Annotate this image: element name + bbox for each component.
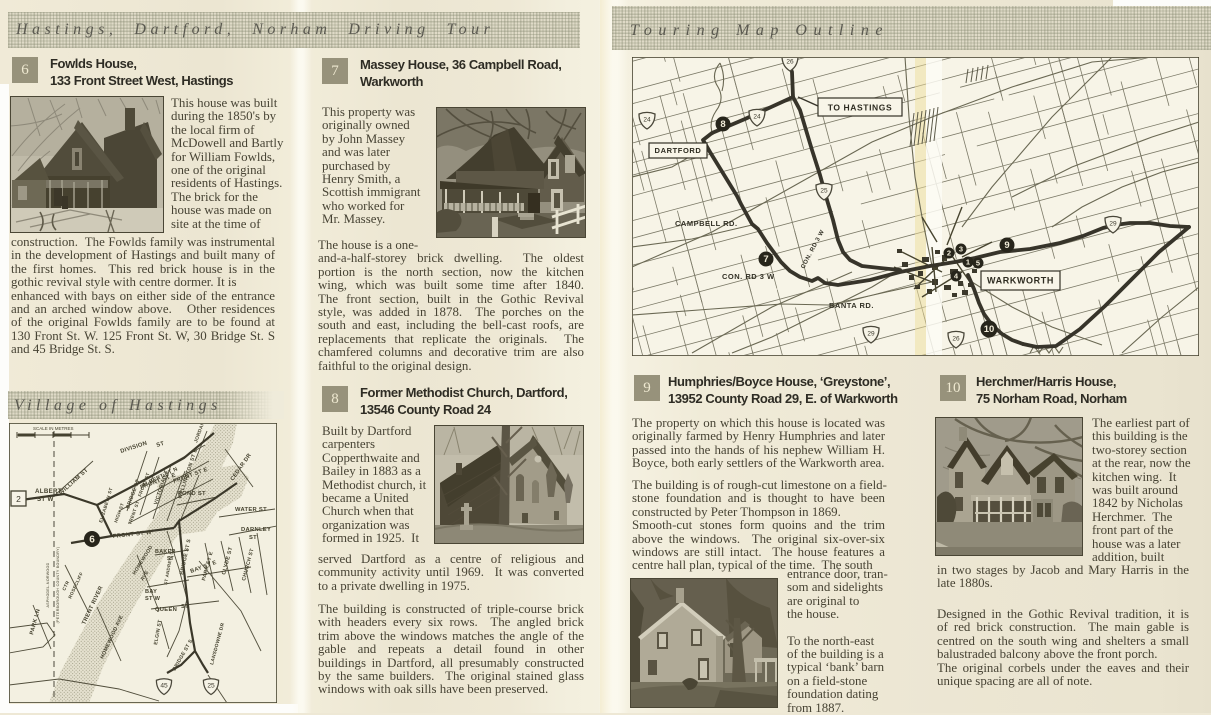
svg-text:TO HASTINGS: TO HASTINGS [828,103,893,113]
svg-text:25: 25 [207,682,215,689]
svg-text:DARTFORD: DARTFORD [655,146,702,155]
svg-text:9: 9 [1004,240,1009,251]
svg-text:QUEEN: QUEEN [155,607,177,613]
svg-text:CAMPBELL RD.: CAMPBELL RD. [675,219,738,228]
svg-text:6: 6 [89,534,95,545]
svg-text:24: 24 [753,114,761,121]
svg-text:3: 3 [959,245,963,254]
svg-text:ASPHODEL-NORWOOD: ASPHODEL-NORWOOD [46,562,50,607]
svg-text:WATER ST: WATER ST [235,507,267,513]
svg-text:2: 2 [16,494,21,504]
svg-text:29: 29 [1109,221,1117,228]
svg-text:ST W: ST W [145,596,161,602]
svg-text:8: 8 [720,119,725,130]
svg-text:BAY: BAY [145,589,157,595]
svg-text:5: 5 [976,259,980,268]
svg-text:WARKWORTH: WARKWORTH [987,276,1054,286]
svg-text:CON. RD 3 W: CON. RD 3 W [722,272,775,281]
svg-text:ST: ST [249,535,257,541]
svg-text:ST W: ST W [37,496,54,503]
svg-text:1: 1 [966,258,970,267]
svg-text:ST: ST [181,604,189,610]
svg-text:BANTA RD.: BANTA RD. [829,301,874,310]
svg-text:(PETERBOROUGH COUNTY BOUNDRY): (PETERBOROUGH COUNTY BOUNDRY) [56,547,60,624]
svg-text:SCALE IN METRES: SCALE IN METRES [33,426,74,431]
svg-text:2: 2 [947,249,951,258]
svg-text:7: 7 [763,254,768,265]
svg-text:POND ST: POND ST [178,491,206,497]
svg-text:26: 26 [786,59,794,66]
svg-text:10: 10 [984,324,995,335]
svg-text:24: 24 [643,117,651,124]
svg-text:25: 25 [820,188,828,195]
svg-text:26: 26 [952,336,960,343]
svg-text:DARNLEY: DARNLEY [241,527,271,533]
svg-text:45: 45 [160,682,168,689]
svg-text:29: 29 [867,331,875,338]
